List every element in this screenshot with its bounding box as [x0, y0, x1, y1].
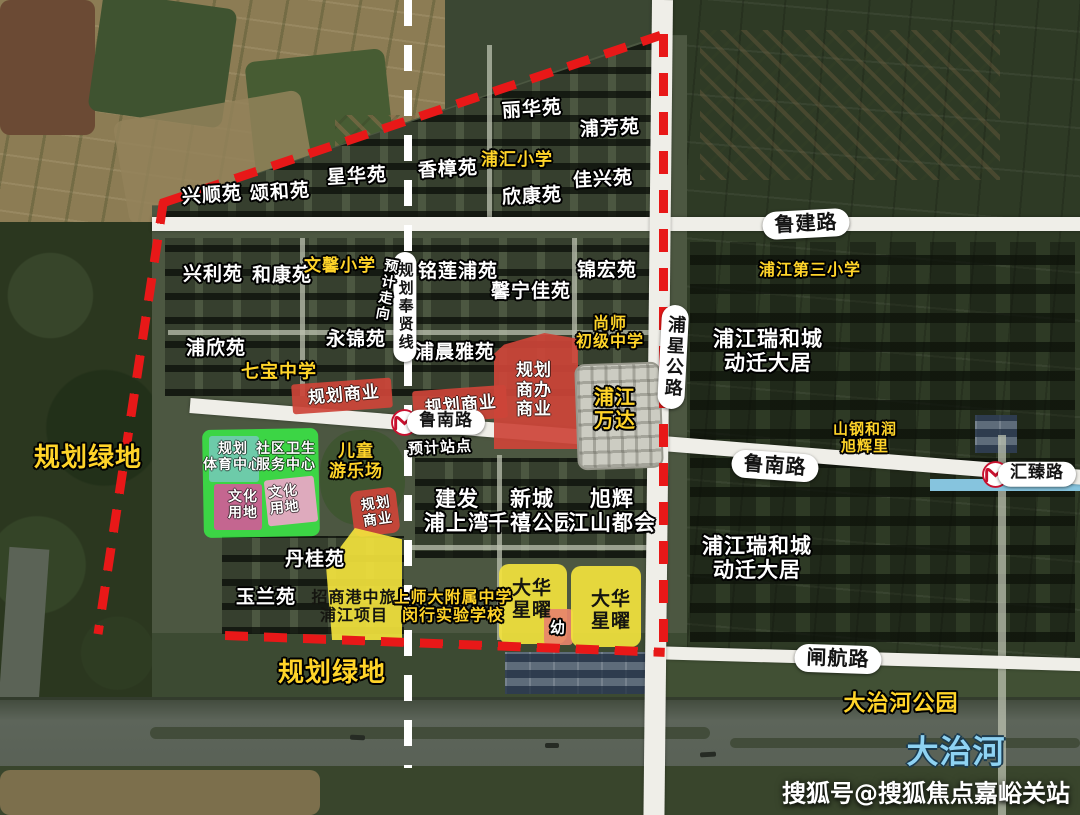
compound-songheyuan: 颂和苑: [249, 180, 310, 206]
school-pujiang-third-primary: 浦江第三小学: [759, 261, 861, 279]
compound-puxinyuan: 浦欣苑: [186, 338, 246, 360]
watermark-text: 搜狐号@搜狐焦点嘉峪关站: [782, 774, 1070, 809]
map-labels-layer: 丽华苑浦芳苑星华苑香樟苑欣康苑佳兴苑兴顺苑颂和苑兴利苑和康苑铭莲浦苑馨宁佳苑锦宏…: [0, 0, 1080, 815]
school-puhui-primary: 浦汇小学: [481, 151, 553, 171]
project-xincheng-qianxi-park: 新城 千禧公园: [488, 487, 576, 535]
project-dahua-xingyao-west: 大华 星曜: [512, 578, 552, 622]
zone-green-south-label: 规划绿地: [278, 659, 386, 689]
road-zhahang-label: 闸航路: [794, 643, 882, 674]
poi-pujiang-wanda: 浦江 万达: [594, 386, 636, 432]
zone-community-health-label: 社区卫生 服务中心: [256, 441, 316, 473]
compound-yulanyuan: 玉兰苑: [236, 587, 296, 609]
school-wenxin-primary: 文馨小学: [304, 257, 376, 277]
compound-xinningjiayuan: 馨宁佳苑: [491, 281, 571, 303]
zone-sports-center-label: 规划 体育中心: [203, 441, 263, 473]
map-canvas: 丽华苑浦芳苑星华苑香樟苑欣康苑佳兴苑兴顺苑颂和苑兴利苑和康苑铭莲浦苑馨宁佳苑锦宏…: [0, 0, 1080, 815]
poi-dazhihe-park: 大治河公园: [843, 691, 958, 716]
road-huizhen-label: 汇臻路: [998, 462, 1076, 487]
road-lunan-east-label: 鲁南路: [731, 449, 820, 483]
zone-culture-west-label: 文化 用地: [228, 489, 258, 521]
compound-danguiyuan: 丹桂苑: [285, 549, 345, 571]
zone-kindergarten-label: 幼: [550, 619, 566, 636]
compound-xiangzhangyuan: 香樟苑: [417, 158, 478, 183]
project-dahua-xingyao-east: 大华 星曜: [591, 589, 631, 633]
compound-xinkangyuan: 欣康苑: [501, 185, 562, 210]
compound-lihuayuan: 丽华苑: [501, 97, 562, 123]
compound-hekangyuan: 和康苑: [252, 265, 312, 287]
project-jianfa-pushangwan: 建发 浦上湾: [424, 487, 490, 535]
road-lunan-west-label: 鲁南路: [407, 410, 485, 435]
compound-xinghuayuan: 星华苑: [326, 165, 387, 190]
poi-planned-station: 预计站点: [408, 438, 473, 459]
road-lujian-label: 鲁建路: [762, 208, 850, 241]
poi-children-playground: 儿童 游乐场: [329, 442, 383, 481]
compound-jiaxingyuan: 佳兴苑: [572, 168, 633, 193]
school-qibao-middle: 七宝中学: [241, 363, 317, 384]
project-xuhui-jiangshan-duhui: 旭辉 江山都会: [568, 487, 656, 535]
district-ruihecheng-south: 浦江瑞和城 动迁大居: [702, 534, 812, 582]
project-zhaoshang-gangzhonglv: 招商港中旅 浦江项目: [311, 589, 396, 626]
compound-xingshunyuan: 兴顺苑: [181, 183, 242, 209]
road-puxing-highway-label: 浦星公路: [657, 304, 689, 409]
zone-planned-commercial-office: 规划 商办 商业: [516, 362, 552, 421]
zone-planned-commercial-west: 规划商业: [307, 383, 380, 409]
compound-puchenyayuan: 浦晨雅苑: [415, 342, 495, 364]
zone-culture-east-label: 文化 用地: [267, 482, 300, 517]
district-ruihecheng-north: 浦江瑞和城 动迁大居: [713, 327, 823, 375]
zone-planned-commercial-small: 规划 商业: [360, 494, 394, 530]
school-shangshi-middle: 尚师 初级中学: [576, 315, 644, 352]
compound-pufangyuan: 浦芳苑: [579, 117, 640, 142]
river-dazhihe-label: 大治河: [906, 734, 1005, 771]
zone-green-west-label: 规划绿地: [34, 444, 142, 474]
compound-yongjinyuan: 永锦苑: [326, 329, 386, 351]
compound-minglianpuyuan: 铭莲浦苑: [418, 261, 498, 283]
compound-jinhongyuan: 锦宏苑: [577, 260, 637, 282]
school-shishida-affiliated: 上师大附属中学 闵行实验学校: [393, 589, 512, 626]
poi-shangang-herun-xuhuili: 山钢和润 旭辉里: [833, 421, 897, 456]
compound-xingliyuan: 兴利苑: [183, 264, 243, 286]
